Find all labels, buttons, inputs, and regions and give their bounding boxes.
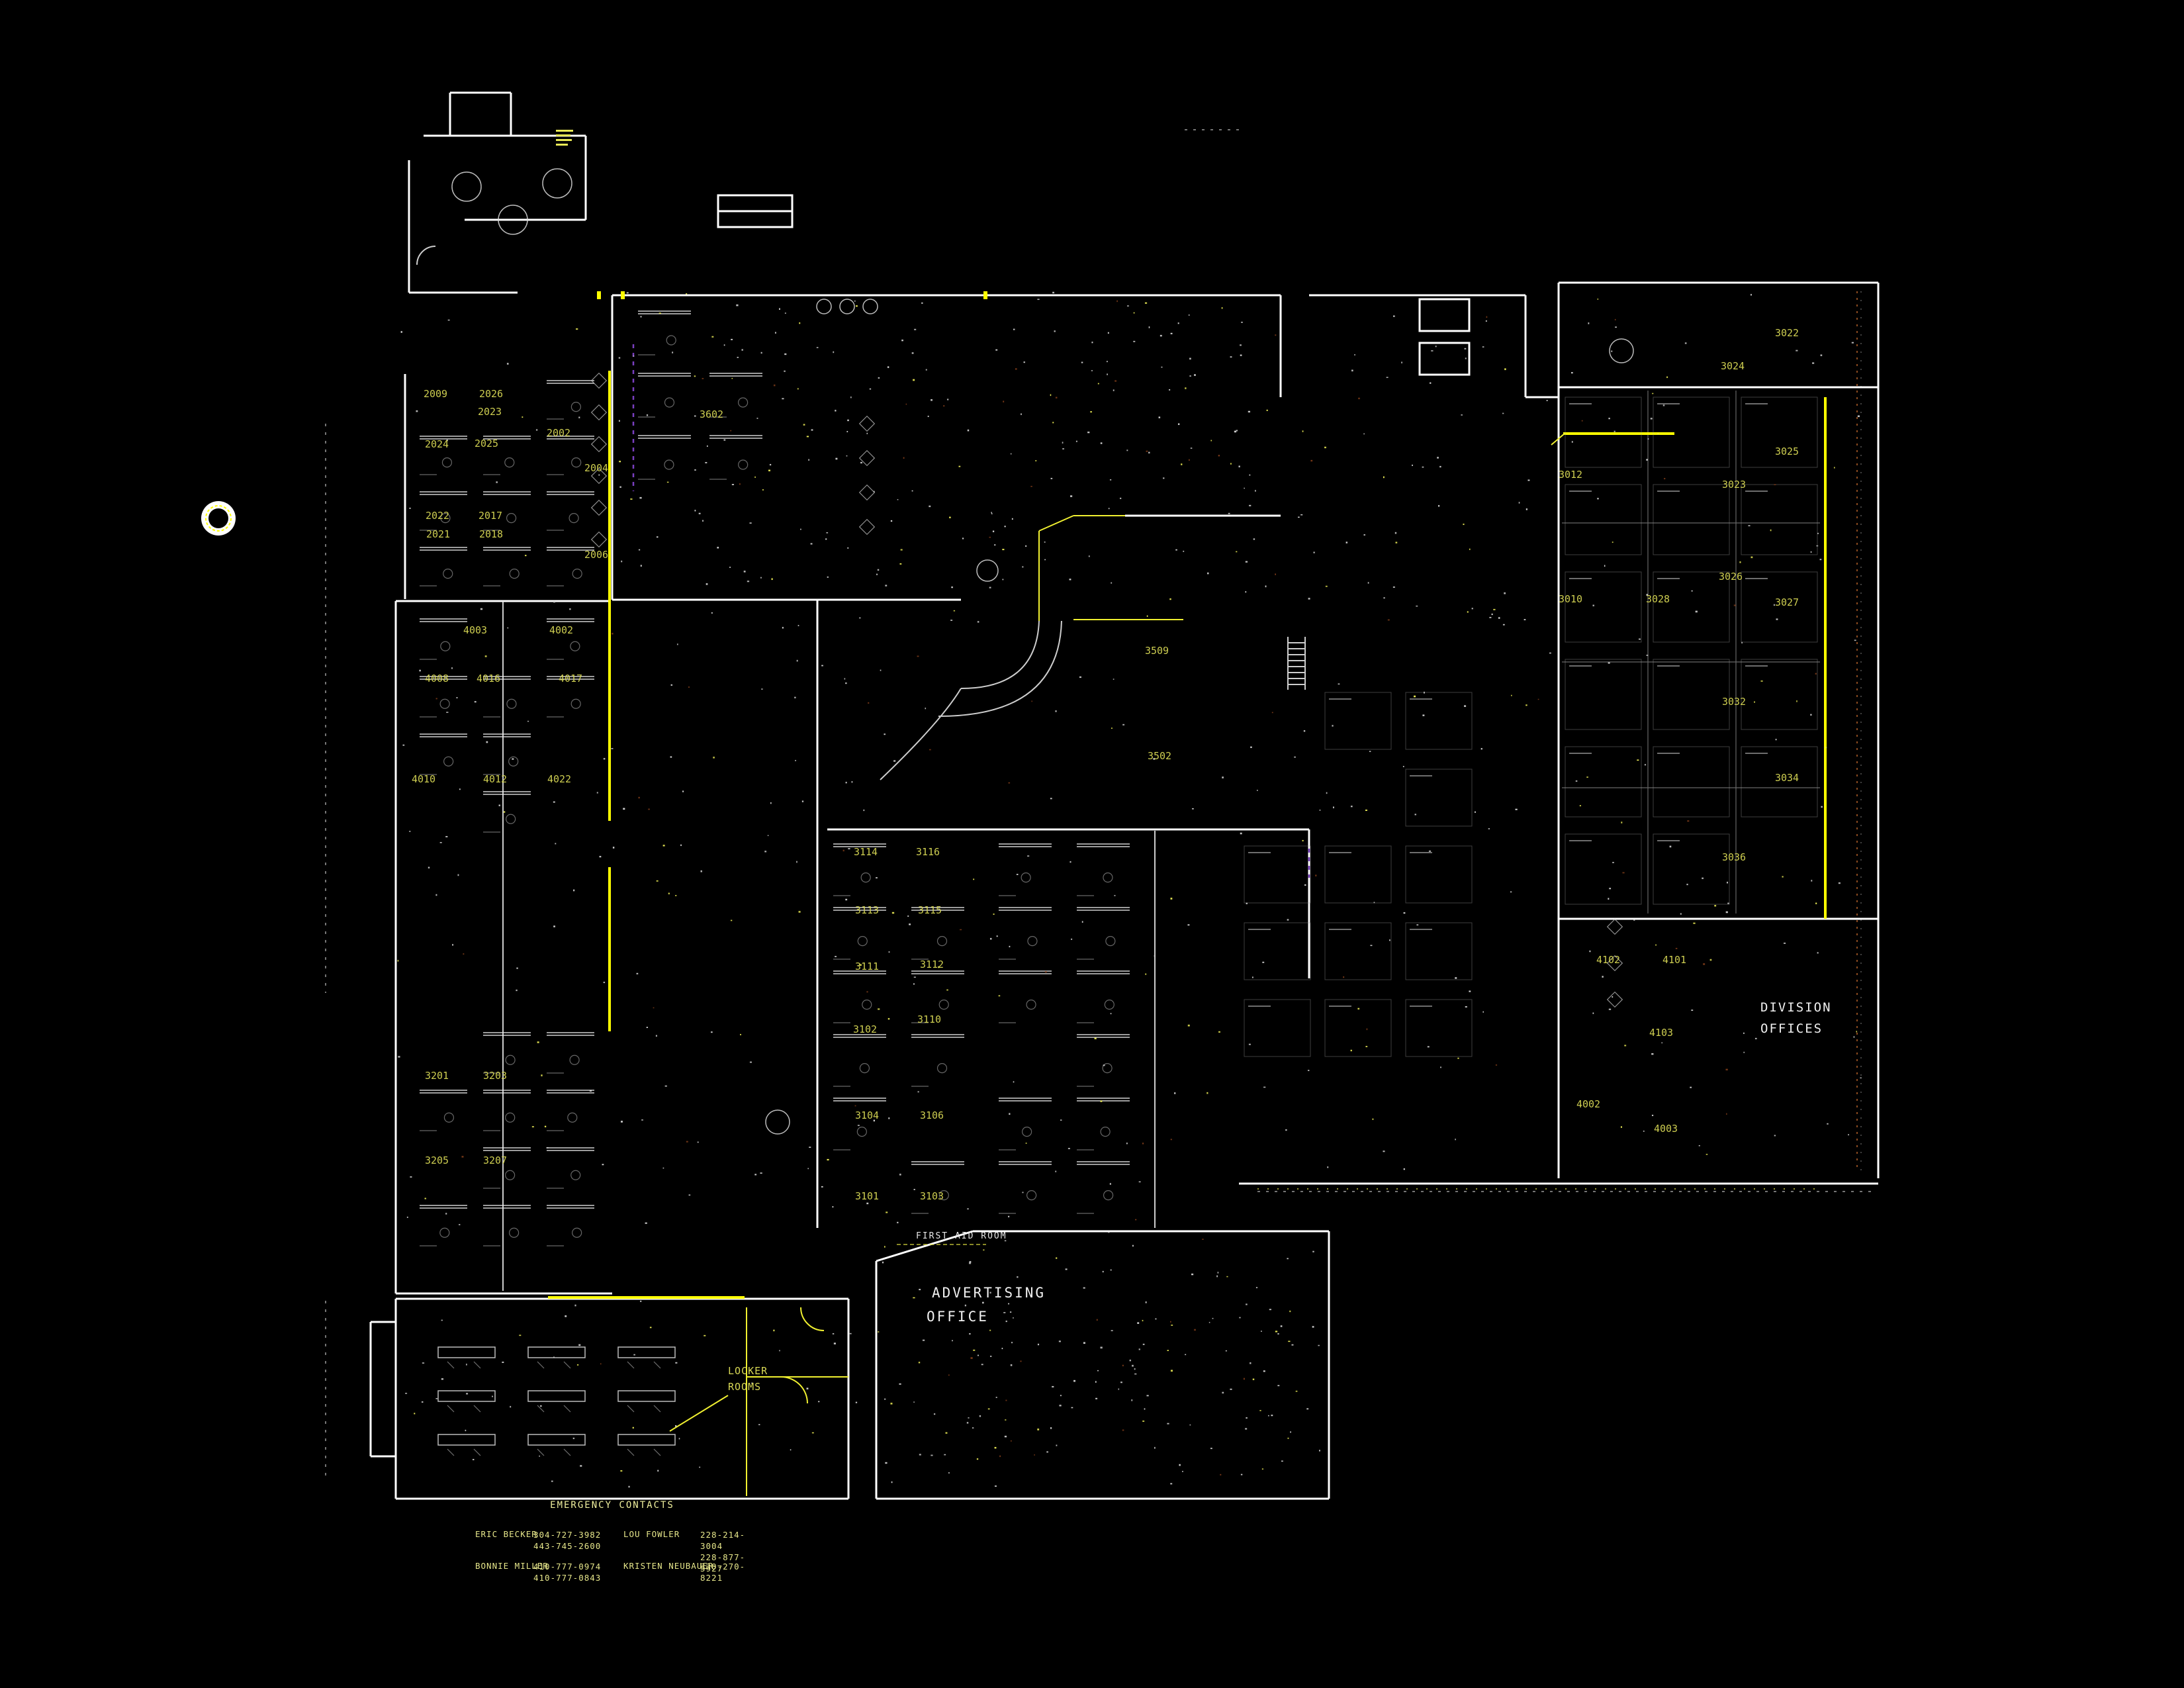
room-label: 3028 <box>1646 593 1670 605</box>
room-cell <box>1565 572 1641 642</box>
chair-icon <box>1027 1191 1036 1200</box>
chair-icon <box>861 873 870 882</box>
diag-desk <box>592 405 607 420</box>
room-cell <box>1741 485 1817 555</box>
round-table <box>1610 339 1633 363</box>
room-label: 2023 <box>478 406 502 418</box>
room-label: 3110 <box>917 1013 941 1025</box>
room-cell <box>1325 846 1391 903</box>
chair-icon <box>569 514 578 523</box>
room-label: 4002 <box>1576 1098 1600 1110</box>
table <box>618 1391 675 1401</box>
room-label: 3205 <box>425 1154 449 1166</box>
room-label: 3116 <box>916 846 940 858</box>
chair-icon <box>444 757 453 766</box>
room-label: 2024 <box>425 438 449 450</box>
chair-icon <box>570 641 580 651</box>
chair-icon <box>739 460 748 469</box>
room-label: 4003 <box>463 624 487 636</box>
chair-icon <box>1105 1000 1114 1009</box>
room-cell <box>1565 485 1641 555</box>
detail-speckle <box>398 292 1862 1487</box>
room-cell <box>1406 692 1472 749</box>
round-table <box>543 169 572 198</box>
chair-icon <box>440 699 449 708</box>
chair-icon <box>572 569 582 579</box>
contact-name: LOU FOWLER <box>623 1529 680 1539</box>
diag-desk <box>860 416 875 432</box>
area-name-labels: FIRST AID ROOMADVERTISINGOFFICEDIVISIONO… <box>728 1000 1832 1393</box>
chair-icon <box>860 1064 869 1073</box>
room-label: 3032 <box>1722 696 1746 708</box>
chair-icon <box>857 1127 866 1137</box>
diag-desk <box>860 520 875 535</box>
walls-secondary <box>417 246 1305 1291</box>
room-label: 3115 <box>918 904 942 916</box>
diag-desk <box>592 532 607 547</box>
area-label: LOCKER <box>728 1365 768 1377</box>
room-label: 3201 <box>425 1070 449 1082</box>
room-label: 3027 <box>1775 596 1799 608</box>
room-label: 4012 <box>483 773 507 785</box>
chair-icon <box>664 398 674 407</box>
table <box>528 1434 585 1445</box>
chair-icon <box>666 336 676 345</box>
room-label: 3036 <box>1722 851 1746 863</box>
area-label: ADVERTISING <box>932 1285 1046 1301</box>
room-cell <box>1565 659 1641 729</box>
chair-icon <box>442 458 451 467</box>
room-label: 3101 <box>855 1190 879 1202</box>
chair-icon <box>858 937 867 946</box>
room-label: 3113 <box>855 904 879 916</box>
room-label: 2017 <box>478 510 502 522</box>
round-table <box>452 172 481 201</box>
walls-primary <box>371 93 1878 1499</box>
room-label: 4017 <box>559 673 582 684</box>
room-cell <box>1244 923 1310 980</box>
room-label: 2021 <box>426 528 450 540</box>
room-label: 4016 <box>477 673 500 684</box>
round-table <box>977 560 998 581</box>
room-label: 3509 <box>1145 645 1169 657</box>
chair-icon <box>571 1170 580 1180</box>
contact-name: ERIC BECKER <box>475 1529 537 1539</box>
chair-icon <box>440 1228 449 1237</box>
floor-plan-svg: 2009202620232024202520222017202120182002… <box>0 0 2184 1688</box>
chair-icon <box>739 398 748 407</box>
purple-lines <box>633 344 1309 878</box>
room-number-labels: 2009202620232024202520222017202120182002… <box>412 327 1799 1202</box>
table <box>438 1347 495 1358</box>
room-label: 3022 <box>1775 327 1799 339</box>
room-label: 4008 <box>425 673 449 684</box>
room-label: 3203 <box>483 1070 507 1082</box>
chair-icon <box>1023 1127 1032 1137</box>
plan-canvas: 2009202620232024202520222017202120182002… <box>0 0 2184 1688</box>
table <box>618 1347 675 1358</box>
room-label: 3012 <box>1559 469 1582 481</box>
room-cell <box>1406 846 1472 903</box>
room-cell <box>1244 846 1310 903</box>
chair-icon <box>506 1113 515 1122</box>
chair-icon <box>664 460 674 469</box>
chair-icon <box>506 1055 515 1064</box>
tiny-annotation-block <box>556 130 573 146</box>
room-label: 3102 <box>853 1023 877 1035</box>
chair-icon <box>568 1113 577 1122</box>
room-label: 4003 <box>1654 1123 1678 1135</box>
chair-icon <box>571 402 580 412</box>
area-label: OFFICE <box>927 1309 989 1325</box>
chair-icon <box>509 757 518 766</box>
chair-icon <box>507 514 516 523</box>
chair-icon <box>506 814 516 823</box>
chair-icon <box>441 641 450 651</box>
room-label: 3103 <box>920 1190 944 1202</box>
room-label: 2009 <box>424 388 447 400</box>
room-label: 2018 <box>479 528 503 540</box>
area-label: OFFICES <box>1760 1021 1823 1036</box>
diag-desk <box>1608 992 1623 1008</box>
room-label: 3112 <box>920 959 944 970</box>
chair-icon <box>570 1055 579 1064</box>
chair-icon <box>1106 937 1115 946</box>
room-cell <box>1406 1000 1472 1056</box>
chair-icon <box>572 1228 582 1237</box>
chair-icon <box>443 569 453 579</box>
room-label: 3207 <box>483 1154 507 1166</box>
chair-icon <box>1104 1191 1113 1200</box>
room-label: 3026 <box>1719 571 1743 583</box>
room-label: 2002 <box>547 427 570 439</box>
column-donut <box>201 501 236 536</box>
chair-icon <box>571 699 580 708</box>
chair-icon <box>938 1064 947 1073</box>
round-table <box>766 1110 790 1134</box>
room-label: 3502 <box>1148 750 1171 762</box>
room-label: 3025 <box>1775 445 1799 457</box>
chair-icon <box>505 458 514 467</box>
room-cell <box>1406 769 1472 826</box>
diag-desk <box>592 500 607 516</box>
contact-phones: 304-727-3982 443-745-2600 <box>533 1529 601 1552</box>
chair-icon <box>862 1000 872 1009</box>
diag-desk <box>1608 919 1623 935</box>
contact-phones: 320-270-8221 <box>700 1561 761 1583</box>
room-label: 2025 <box>475 438 498 449</box>
furniture-symbols <box>420 169 1817 1456</box>
chair-icon <box>1021 873 1030 882</box>
room-cell <box>1653 485 1729 555</box>
legend-title: EMERGENCY CONTACTS <box>463 1500 761 1511</box>
room-label: 4022 <box>547 773 571 785</box>
room-label: 3023 <box>1722 479 1746 491</box>
chair-icon <box>1103 873 1113 882</box>
chair-icon <box>510 569 519 579</box>
table <box>438 1391 495 1401</box>
table <box>528 1391 585 1401</box>
room-label: 3106 <box>920 1109 944 1121</box>
room-label: 4101 <box>1662 954 1686 966</box>
chair-icon <box>506 1170 515 1180</box>
room-label: 3114 <box>854 846 878 858</box>
room-cell <box>1653 659 1729 729</box>
room-label: 2022 <box>426 510 449 522</box>
round-table <box>817 299 831 314</box>
room-cell <box>1653 572 1729 642</box>
room-cell <box>1653 834 1729 904</box>
room-cell <box>1406 923 1472 980</box>
chair-icon <box>939 1000 948 1009</box>
chair-icon <box>444 1113 453 1122</box>
chair-icon <box>1101 1127 1110 1137</box>
area-label: FIRST AID ROOM <box>916 1231 1007 1241</box>
room-cell <box>1325 923 1391 980</box>
contact-phones: 410-777-0974 410-777-0843 <box>533 1561 601 1583</box>
chair-icon <box>937 937 946 946</box>
room-cell <box>1565 834 1641 904</box>
emergency-contacts-legend: EMERGENCY CONTACTS ERIC BECKER 304-727-3… <box>463 1500 761 1593</box>
chair-icon <box>1026 1000 1036 1009</box>
area-label: DIVISION <box>1760 1000 1832 1015</box>
room-label: 4010 <box>412 773 435 785</box>
diag-desk <box>860 485 875 500</box>
room-label: 3024 <box>1721 360 1745 372</box>
round-table <box>840 299 854 314</box>
room-label: 3602 <box>700 408 723 420</box>
dashed-lines <box>326 130 1873 1476</box>
round-table <box>863 299 878 314</box>
room-cell <box>1741 659 1817 729</box>
room-cell <box>1325 692 1391 749</box>
room-label: 2006 <box>584 549 608 561</box>
table <box>618 1434 675 1445</box>
room-label: 2004 <box>584 462 608 474</box>
table <box>528 1347 585 1358</box>
walls-faint <box>1562 391 1820 914</box>
room-label: 4002 <box>549 624 573 636</box>
yellow-walls-thin <box>670 434 1565 1496</box>
room-label: 3010 <box>1559 593 1582 605</box>
chair-icon <box>507 699 516 708</box>
area-label: ROOMS <box>728 1381 761 1393</box>
room-cell <box>1653 747 1729 817</box>
room-label: 3104 <box>855 1109 879 1121</box>
room-cell <box>1244 1000 1310 1056</box>
room-label: 4102 <box>1596 954 1620 966</box>
table <box>438 1434 495 1445</box>
chair-icon <box>510 1228 519 1237</box>
chair-icon <box>1028 937 1037 946</box>
chair-icon <box>572 458 581 467</box>
room-label: 3111 <box>855 961 879 972</box>
room-label: 2026 <box>479 388 503 400</box>
room-cell <box>1565 747 1641 817</box>
room-label: 3034 <box>1775 772 1799 784</box>
room-label: 4103 <box>1649 1027 1673 1039</box>
